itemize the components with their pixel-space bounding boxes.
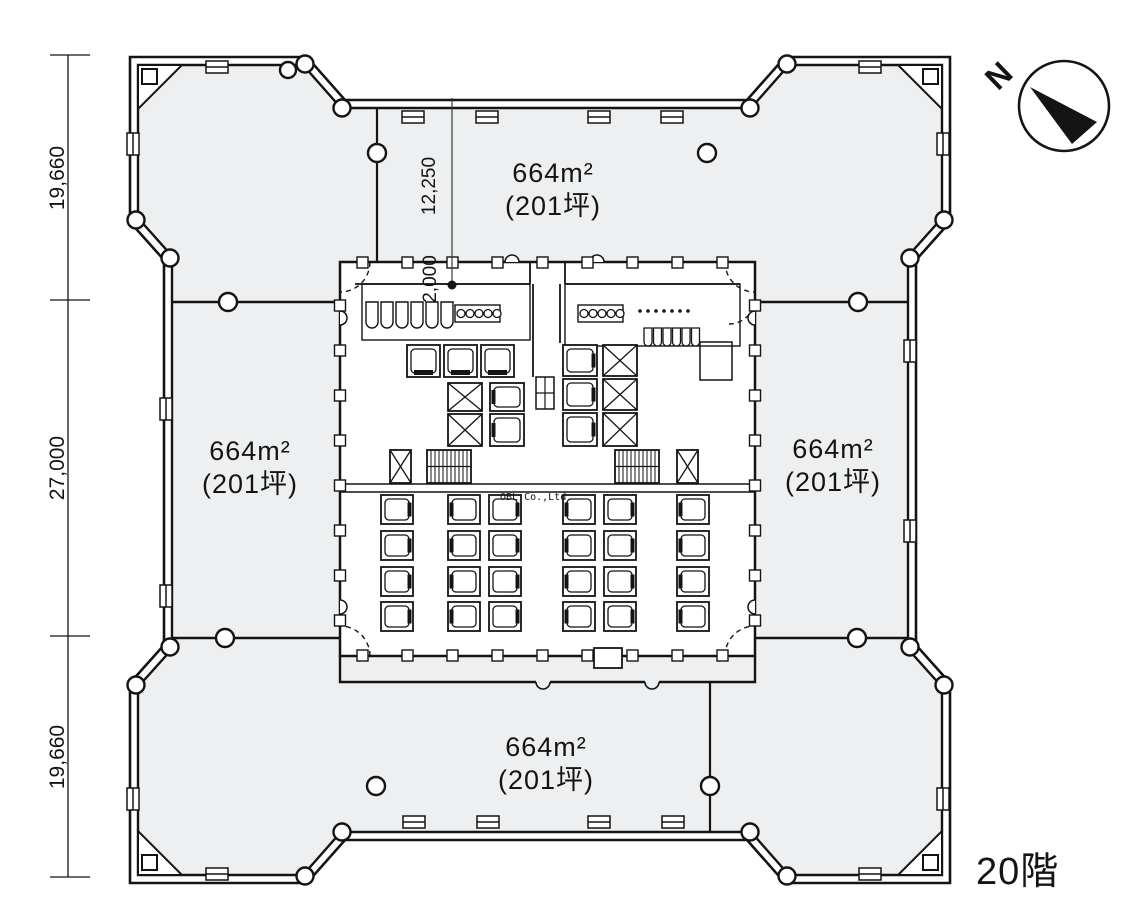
compass-icon <box>1019 61 1109 151</box>
dimension-left-bottom: 19,660 <box>46 725 70 789</box>
area-size-tsubo: (201坪) <box>436 764 656 797</box>
area-label-east: 664m² (201坪) <box>723 433 943 499</box>
watermark-text: OBL Co.,Ltd. <box>500 492 572 503</box>
dimension-left-top: 19,660 <box>46 146 70 210</box>
area-label-north: 664m² (201坪) <box>443 157 663 223</box>
area-label-south: 664m² (201坪) <box>436 731 656 797</box>
dimension-left-middle: 27,000 <box>46 436 70 500</box>
area-size-m2: 664m² <box>443 157 663 190</box>
area-size-m2: 664m² <box>140 435 360 468</box>
core <box>335 255 761 668</box>
floor-plan-page: 664m² (201坪) 664m² (201坪) 664m² (201坪) 6… <box>0 0 1147 916</box>
area-label-west: 664m² (201坪) <box>140 435 360 501</box>
dimension-core-offset: 2,000 <box>420 255 442 303</box>
area-size-m2: 664m² <box>723 433 943 466</box>
area-size-tsubo: (201坪) <box>443 190 663 223</box>
dimension-top-offset: 12,250 <box>419 157 441 215</box>
floor-number-label: 20階 <box>976 840 1059 895</box>
area-size-tsubo: (201坪) <box>723 466 943 499</box>
area-size-tsubo: (201坪) <box>140 468 360 501</box>
area-size-m2: 664m² <box>436 731 656 764</box>
